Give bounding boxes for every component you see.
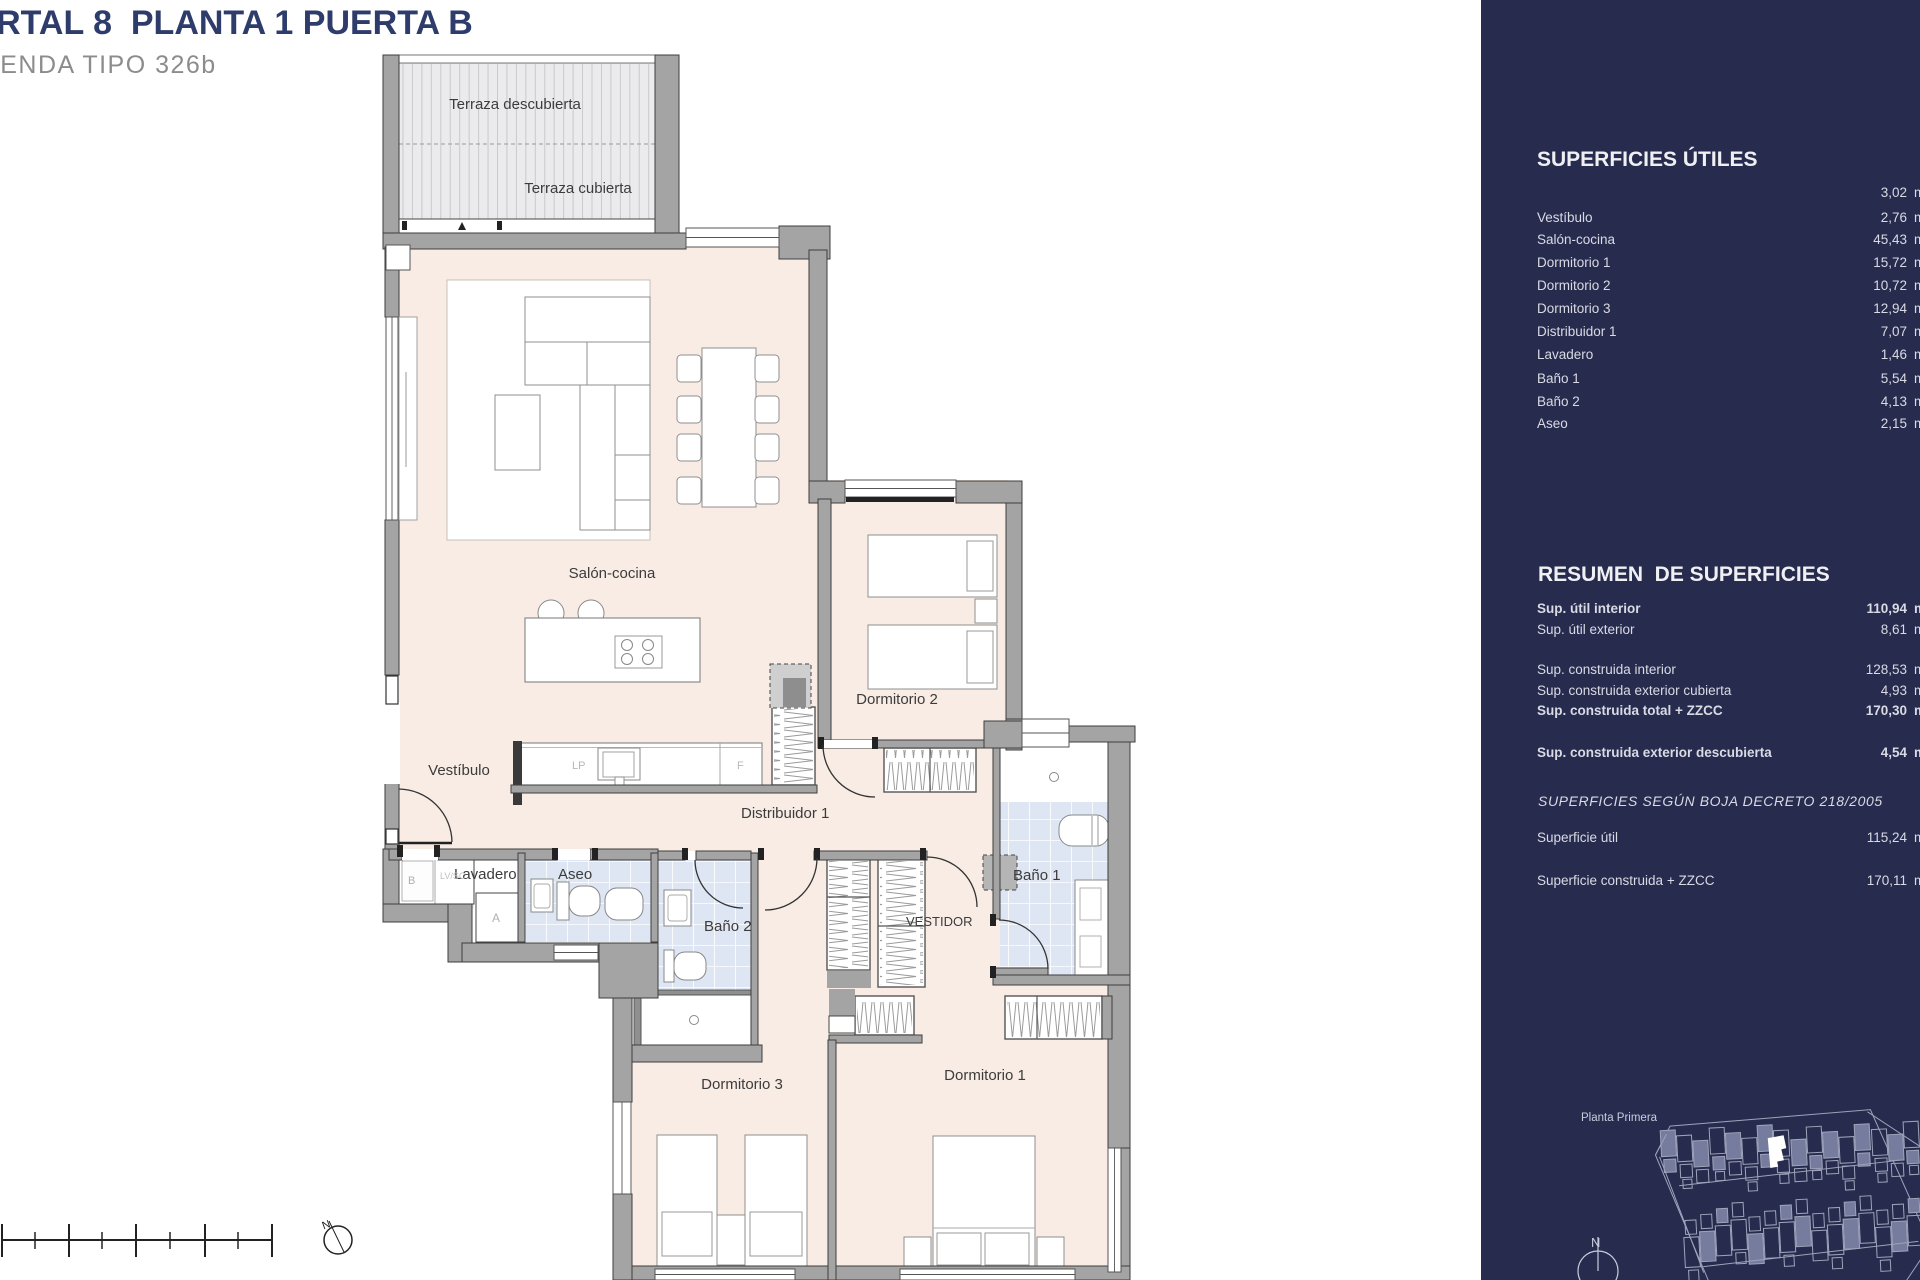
svg-text:m²: m² (1914, 232, 1920, 247)
svg-text:Planta Primera: Planta Primera (1581, 1112, 1658, 1124)
svg-text:m²: m² (1914, 394, 1920, 409)
svg-text:m²: m² (1914, 324, 1920, 339)
svg-text:m²: m² (1914, 662, 1920, 677)
svg-text:Baño 1: Baño 1 (1537, 371, 1580, 386)
svg-text:2,15: 2,15 (1881, 416, 1907, 431)
svg-text:12,94: 12,94 (1873, 301, 1907, 316)
svg-text:F: F (737, 760, 744, 772)
svg-text:170,30: 170,30 (1866, 703, 1907, 718)
svg-text:m²: m² (1914, 185, 1920, 200)
svg-text:4,13: 4,13 (1881, 394, 1907, 409)
svg-text:128,53: 128,53 (1866, 662, 1907, 677)
svg-text:LV/SC: LV/SC (440, 871, 466, 881)
svg-text:4,54: 4,54 (1881, 745, 1908, 760)
svg-text:Dormitorio 1: Dormitorio 1 (1537, 255, 1611, 270)
svg-text:Sup. construida total + ZZCC: Sup. construida total + ZZCC (1537, 703, 1723, 718)
svg-text:3,02: 3,02 (1881, 185, 1907, 200)
svg-text:Vestíbulo: Vestíbulo (428, 762, 490, 779)
svg-text:B: B (408, 875, 415, 887)
svg-text:Aseo: Aseo (558, 866, 592, 883)
svg-text:m²: m² (1914, 371, 1920, 386)
svg-text:4,93: 4,93 (1881, 683, 1907, 698)
svg-text:Sup. construida interior: Sup. construida interior (1537, 662, 1676, 677)
svg-text:VESTIDOR: VESTIDOR (906, 914, 972, 929)
svg-text:Baño 2: Baño 2 (1537, 394, 1580, 409)
svg-text:1,46: 1,46 (1881, 347, 1907, 362)
svg-text:m²: m² (1914, 601, 1920, 616)
svg-text:45,43: 45,43 (1873, 232, 1907, 247)
svg-text:Distribuidor 1: Distribuidor 1 (1537, 324, 1617, 339)
svg-text:SUPERFICIES SEGÚN BOJA DECRETO: SUPERFICIES SEGÚN BOJA DECRETO 218/2005 (1538, 793, 1883, 809)
svg-text:m²: m² (1914, 873, 1920, 888)
svg-text:Baño 1: Baño 1 (1013, 867, 1061, 884)
svg-text:m²: m² (1914, 347, 1920, 362)
svg-text:Dormitorio 2: Dormitorio 2 (856, 691, 938, 708)
svg-text:Baño 2: Baño 2 (704, 918, 752, 935)
svg-text:Dormitorio 2: Dormitorio 2 (1537, 278, 1611, 293)
svg-text:Superficie construida + ZZCC: Superficie construida + ZZCC (1537, 873, 1715, 888)
svg-text:110,94: 110,94 (1866, 601, 1907, 616)
svg-text:Sup. construida exterior descu: Sup. construida exterior descubierta (1537, 745, 1772, 760)
svg-text:m²: m² (1914, 703, 1920, 718)
svg-text:15,72: 15,72 (1873, 255, 1907, 270)
svg-text:m²: m² (1914, 745, 1920, 760)
svg-text:Sup. construida exterior cubie: Sup. construida exterior cubierta (1537, 683, 1732, 698)
svg-text:PORTAL 8 PLANTA 1 PUERTA B: PORTAL 8 PLANTA 1 PUERTA B (0, 4, 473, 42)
svg-text:Superficie útil: Superficie útil (1537, 830, 1618, 845)
svg-text:Terraza cubierta: Terraza cubierta (524, 180, 632, 197)
svg-text:Dormitorio 3: Dormitorio 3 (701, 1076, 783, 1093)
svg-text:Aseo: Aseo (1537, 416, 1568, 431)
svg-text:7,07: 7,07 (1881, 324, 1907, 339)
svg-text:m²: m² (1914, 683, 1920, 698)
svg-text:2,76: 2,76 (1881, 210, 1907, 225)
svg-text:m²: m² (1914, 830, 1920, 845)
svg-text:SUPERFICIES ÚTILES: SUPERFICIES ÚTILES (1537, 147, 1758, 171)
svg-text:115,24: 115,24 (1867, 830, 1908, 845)
svg-text:Dormitorio 1: Dormitorio 1 (944, 1067, 1026, 1084)
svg-text:m²: m² (1914, 278, 1920, 293)
svg-text:Sup. útil exterior: Sup. útil exterior (1537, 622, 1635, 637)
svg-text:Sup. útil interior: Sup. útil interior (1537, 601, 1641, 616)
svg-text:m²: m² (1914, 301, 1920, 316)
svg-text:m²: m² (1914, 622, 1920, 637)
svg-text:Distribuidor 1: Distribuidor 1 (741, 805, 829, 822)
svg-text:8,61: 8,61 (1881, 622, 1907, 637)
svg-text:10,72: 10,72 (1873, 278, 1907, 293)
svg-text:5,54: 5,54 (1881, 371, 1908, 386)
svg-text:Salón-cocina: Salón-cocina (1537, 232, 1616, 247)
svg-text:170,11: 170,11 (1867, 873, 1907, 888)
svg-text:Lavadero: Lavadero (1537, 347, 1593, 362)
svg-text:A: A (492, 911, 500, 925)
svg-text:m²: m² (1914, 416, 1920, 431)
svg-text:m²: m² (1914, 255, 1920, 270)
svg-text:Vestíbulo: Vestíbulo (1537, 210, 1593, 225)
svg-text:VIVIENDA TIPO 326b: VIVIENDA TIPO 326b (0, 51, 217, 79)
svg-text:LP: LP (572, 760, 585, 772)
svg-text:RESUMEN DE SUPERFICIES: RESUMEN DE SUPERFICIES (1538, 563, 1830, 586)
svg-text:m²: m² (1914, 210, 1920, 225)
svg-text:Salón-cocina: Salón-cocina (569, 565, 656, 582)
svg-text:Dormitorio 3: Dormitorio 3 (1537, 301, 1611, 316)
svg-text:Terraza descubierta: Terraza descubierta (449, 96, 581, 113)
svg-text:N: N (1591, 1235, 1600, 1250)
